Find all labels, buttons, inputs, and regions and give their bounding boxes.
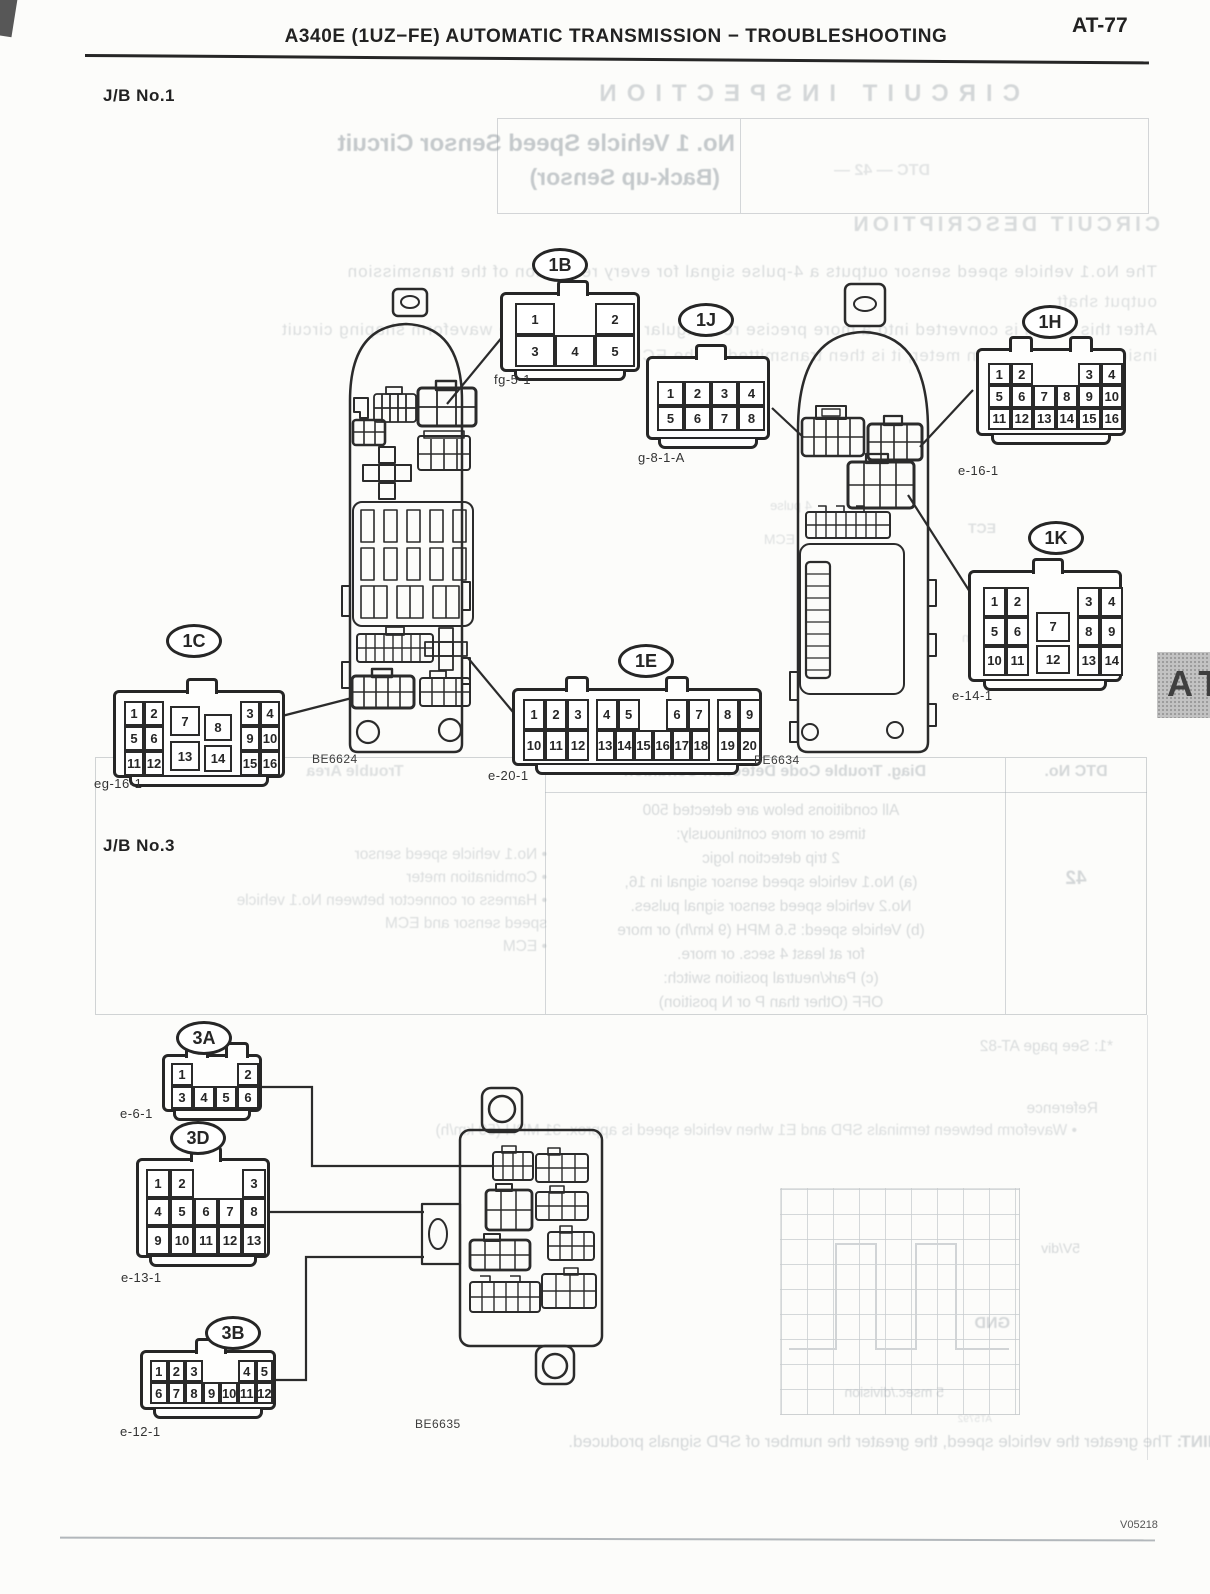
junction-block-1-drawing	[330, 286, 482, 772]
pin-3B-12: 12	[256, 1382, 274, 1404]
pin-1C-3: 3	[240, 701, 260, 726]
pin-3D-11: 11	[194, 1226, 218, 1255]
pin-1K-6: 6	[1006, 617, 1029, 647]
pin-1C-8: 8	[204, 714, 232, 742]
pin-1B-3: 3	[515, 335, 555, 367]
pin-3D-10: 10	[170, 1226, 194, 1255]
pin-1E-8: 8	[717, 699, 739, 730]
connector-1J-housing: 12345678	[646, 356, 770, 440]
junction-block-3-code: BE6635	[415, 1417, 461, 1431]
pin-1C-7: 7	[170, 706, 200, 736]
connector-3B-housing: 123456789101112	[140, 1350, 276, 1410]
connector-3A-base	[173, 1111, 252, 1121]
side-tab-at: AT	[1157, 652, 1210, 718]
pin-1E-7: 7	[688, 699, 710, 730]
pin-3B-7: 7	[168, 1382, 186, 1404]
pin-1E-4: 4	[596, 699, 618, 730]
pin-1H-13: 13	[1033, 408, 1056, 430]
pin-1K-5: 5	[983, 617, 1006, 647]
connector-3A-code: e-6-1	[120, 1106, 153, 1121]
pin-3D-6: 6	[194, 1198, 218, 1227]
pin-1C-4: 4	[260, 701, 280, 726]
pin-3D-12: 12	[218, 1226, 242, 1255]
pin-1E-19: 19	[717, 730, 739, 761]
pin-1E-10: 10	[523, 730, 545, 761]
pin-1E-17: 17	[672, 730, 691, 761]
connector-1E-label: 1E	[618, 644, 674, 678]
pin-3A-5: 5	[215, 1086, 237, 1109]
pin-1J-7: 7	[711, 406, 738, 431]
connector-1E-latch	[565, 676, 589, 692]
pin-1E-1: 1	[523, 699, 545, 730]
pin-1C-11: 11	[124, 751, 144, 776]
pin-1H-11: 11	[988, 408, 1011, 430]
connector-3B-base	[153, 1409, 262, 1419]
pin-3D-5: 5	[170, 1198, 194, 1227]
pin-1E-6: 6	[666, 699, 688, 730]
connector-1H-base	[991, 435, 1112, 445]
pin-1C-16: 16	[260, 751, 280, 776]
pin-1K-14: 14	[1100, 646, 1123, 676]
section-heading-jb1: J/B No.1	[103, 86, 175, 106]
pin-1H-10: 10	[1101, 385, 1124, 407]
junction-block-1-code: BE6624	[312, 752, 358, 766]
connector-1B-latch	[557, 280, 589, 296]
pin-1C-13: 13	[170, 741, 200, 771]
connector-1E-housing: 1234567891011121314151617181920	[512, 688, 762, 766]
pin-1E-2: 2	[545, 699, 567, 730]
pin-1H-1: 1	[988, 363, 1011, 385]
pin-1H-12: 12	[1011, 408, 1034, 430]
pin-1J-3: 3	[711, 381, 738, 406]
pin-3B-4: 4	[238, 1360, 256, 1382]
pin-1K-7: 7	[1036, 612, 1071, 642]
pin-1K-11: 11	[1006, 646, 1029, 676]
pin-1E-12: 12	[567, 730, 589, 761]
pin-1H-4: 4	[1101, 363, 1124, 385]
pin-1E-18: 18	[691, 730, 710, 761]
pin-3A-1: 1	[171, 1063, 193, 1086]
connector-3A-label: 3A	[176, 1021, 232, 1055]
pin-3D-4: 4	[146, 1198, 170, 1227]
connector-1C-code: eg-16-1	[94, 776, 142, 791]
connector-1K-latch	[1032, 558, 1064, 574]
pin-1E-3: 3	[567, 699, 589, 730]
connector-3D-housing: 12345678910111213	[136, 1158, 270, 1258]
pin-1K-2: 2	[1006, 587, 1029, 617]
pin-1J-6: 6	[684, 406, 711, 431]
pin-3A-2: 2	[237, 1063, 259, 1086]
pin-1H-15: 15	[1078, 408, 1101, 430]
pin-1B-2: 2	[595, 303, 635, 335]
connector-1J-latch	[695, 344, 727, 360]
pin-1K-9: 9	[1100, 617, 1123, 647]
pin-1H-7: 7	[1033, 385, 1056, 407]
pin-1C-14: 14	[204, 745, 232, 773]
pin-1J-4: 4	[738, 381, 765, 406]
pin-1K-12: 12	[1036, 645, 1071, 675]
pin-3D-8: 8	[242, 1198, 266, 1227]
junction-block-3-drawing	[418, 1082, 613, 1388]
pin-1H-14: 14	[1056, 408, 1079, 430]
connector-3D-base	[149, 1257, 257, 1267]
connector-3B-code: e-12-1	[120, 1424, 161, 1439]
pin-1C-15: 15	[240, 751, 260, 776]
pin-1K-8: 8	[1077, 617, 1100, 647]
section-heading-jb3: J/B No.3	[103, 836, 175, 856]
connector-1C-base	[129, 777, 268, 787]
pin-3A-4: 4	[193, 1086, 215, 1109]
connector-1E-code: e-20-1	[488, 768, 529, 783]
connector-1H-latch	[1069, 336, 1093, 352]
pin-1H-8: 8	[1056, 385, 1079, 407]
pin-3B-6: 6	[150, 1382, 168, 1404]
pin-1K-1: 1	[983, 587, 1006, 617]
junction-block-2-drawing	[760, 280, 962, 766]
connector-1B-housing: 12345	[500, 292, 640, 372]
pin-3B-11: 11	[238, 1382, 256, 1404]
connector-3A-housing: 123456	[162, 1054, 262, 1112]
pin-1C-5: 5	[124, 726, 144, 751]
pin-1J-5: 5	[657, 406, 684, 431]
pin-3B-9: 9	[203, 1382, 221, 1404]
figure-code: V05218	[1120, 1519, 1158, 1531]
pin-1B-5: 5	[595, 335, 635, 367]
pin-1H-6: 6	[1011, 385, 1034, 407]
pin-3B-3: 3	[185, 1360, 203, 1382]
pin-1C-1: 1	[124, 701, 144, 726]
junction-block-2-code: BE6634	[754, 753, 800, 767]
pin-1B-4: 4	[555, 335, 595, 367]
pin-1H-2: 2	[1011, 363, 1034, 385]
pin-3D-7: 7	[218, 1198, 242, 1227]
pin-3D-13: 13	[242, 1226, 266, 1255]
pin-3D-2: 2	[170, 1169, 194, 1198]
pin-1C-2: 2	[144, 701, 164, 726]
connector-1E-latch	[665, 676, 689, 692]
pin-3B-5: 5	[256, 1360, 274, 1382]
pin-1K-4: 4	[1100, 587, 1123, 617]
pin-3D-3: 3	[242, 1169, 266, 1198]
pin-1H-16: 16	[1101, 408, 1124, 430]
pin-3B-8: 8	[185, 1382, 203, 1404]
pin-1C-9: 9	[240, 726, 260, 751]
pin-1J-2: 2	[684, 381, 711, 406]
connector-1K-housing: 1234567891011121314	[968, 570, 1122, 682]
pin-1J-8: 8	[738, 406, 765, 431]
pin-1K-10: 10	[983, 646, 1006, 676]
connector-3B-label: 3B	[205, 1316, 261, 1350]
pin-1E-16: 16	[653, 730, 672, 761]
connector-1C-label: 1C	[166, 624, 222, 658]
pin-1E-11: 11	[545, 730, 567, 761]
connector-1J-base	[658, 439, 757, 449]
pin-1H-3: 3	[1078, 363, 1101, 385]
connector-3D-code: e-13-1	[121, 1270, 162, 1285]
pin-1K-3: 3	[1077, 587, 1100, 617]
pin-1E-5: 5	[618, 699, 640, 730]
connector-1H-label: 1H	[1022, 305, 1078, 339]
pin-3A-6: 6	[237, 1086, 259, 1109]
pin-1C-6: 6	[144, 726, 164, 751]
connector-1K-code: e-14-1	[952, 688, 993, 703]
connector-1K-label: 1K	[1028, 521, 1084, 555]
connector-1H-housing: 12345678910111213141516	[976, 348, 1126, 436]
pin-3B-2: 2	[168, 1360, 186, 1382]
connector-1C-latch	[186, 678, 218, 694]
pin-1C-12: 12	[144, 751, 164, 776]
pin-1K-13: 13	[1077, 646, 1100, 676]
connector-1B-label: 1B	[532, 248, 588, 282]
pin-1J-1: 1	[657, 381, 684, 406]
pin-1E-15: 15	[634, 730, 653, 761]
pin-1H-9: 9	[1078, 385, 1101, 407]
pin-3A-3: 3	[171, 1086, 193, 1109]
pin-3B-10: 10	[220, 1382, 238, 1404]
pin-1H-5: 5	[988, 385, 1011, 407]
connector-1J-label: 1J	[678, 303, 734, 337]
connector-1E-base	[535, 765, 740, 775]
connector-1J-code: g-8-1-A	[638, 450, 685, 465]
pin-3D-1: 1	[146, 1169, 170, 1198]
connector-1H-code: e-16-1	[958, 463, 999, 478]
pin-3B-1: 1	[150, 1360, 168, 1382]
connector-1H-latch	[1009, 336, 1033, 352]
manual-page: CIRCUIT INSPECTION No. 1 Vehicle Speed S…	[0, 0, 1210, 1594]
connector-1C-housing: 12345678910111213141516	[113, 690, 285, 778]
pin-3D-9: 9	[146, 1226, 170, 1255]
pin-1E-13: 13	[596, 730, 615, 761]
pin-1C-10: 10	[260, 726, 280, 751]
connector-3D-label: 3D	[170, 1121, 226, 1155]
pin-1E-14: 14	[615, 730, 634, 761]
pin-1B-1: 1	[515, 303, 555, 335]
pin-1E-9: 9	[739, 699, 761, 730]
connector-1B-code: fg-5-1	[494, 372, 531, 387]
connector-1K-base	[983, 681, 1107, 691]
